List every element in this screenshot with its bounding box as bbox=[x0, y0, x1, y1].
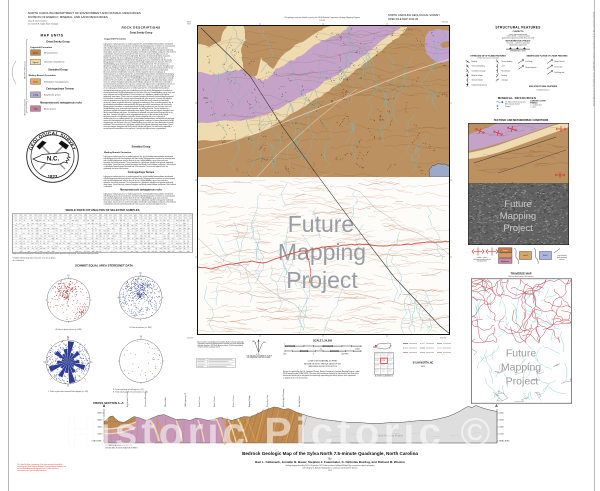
svg-text:TRAVERSE MAP: TRAVERSE MAP bbox=[510, 271, 531, 275]
svg-text:Mesoproterozoic metaigneous ro: Mesoproterozoic metaigneous rocks bbox=[120, 189, 162, 192]
svg-text:N: N bbox=[140, 272, 142, 275]
svg-text:Amphibolite gneiss: Amphibolite gneiss bbox=[44, 93, 61, 96]
svg-text:NORTH CAROLINA GEOLOGICAL SURV: NORTH CAROLINA GEOLOGICAL SURVEY bbox=[388, 13, 440, 17]
svg-text:This geologic map was funded i: This geologic map was funded in part by … bbox=[284, 16, 360, 19]
svg-text:Historic Pictoric ©: Historic Pictoric © bbox=[66, 409, 494, 455]
svg-text:0.5: 0.5 bbox=[320, 348, 322, 350]
svg-text:SEA LEVEL: SEA LEVEL bbox=[499, 440, 511, 443]
svg-text:Copperhill Formation: Copperhill Formation bbox=[30, 46, 53, 49]
svg-text:Future: Future bbox=[506, 348, 537, 360]
svg-text:Great Smoky Group: Great Smoky Group bbox=[46, 41, 70, 44]
svg-text:CONTOUR INTERVAL 40 FEET: CONTOUR INTERVAL 40 FEET bbox=[308, 359, 338, 362]
svg-text:NEOPROTEROZOIC: NEOPROTEROZOIC bbox=[24, 60, 26, 79]
svg-text:Rock Creek: Rock Creek bbox=[214, 397, 216, 407]
svg-text:Mapping: Mapping bbox=[501, 362, 541, 374]
svg-text:1000: 1000 bbox=[283, 354, 287, 356]
svg-text:Inner P.: Inner P. bbox=[523, 255, 528, 257]
svg-text:SCHMIDT EQUAL AREA STEREONET D: SCHMIDT EQUAL AREA STEREONET DATA bbox=[75, 264, 133, 268]
svg-text:Pressley Gap: Pressley Gap bbox=[267, 394, 269, 407]
svg-text:Bart L. Cattanach, Jennifer B.: Bart L. Cattanach, Jennifer B. Bauer, St… bbox=[255, 460, 405, 464]
svg-text:Blue Ridge Parkway: Blue Ridge Parkway bbox=[283, 389, 285, 407]
svg-text:1823: 1823 bbox=[48, 174, 58, 179]
svg-text:Quartzite metasiltstone: Quartzite metasiltstone bbox=[44, 61, 65, 64]
svg-text:A´: A´ bbox=[495, 404, 499, 408]
svg-text:SYLVA NORTH, NC: SYLVA NORTH, NC bbox=[413, 362, 434, 365]
svg-text:Wading Branch Formation: Wading Branch Formation bbox=[104, 151, 132, 154]
svg-text:s – sand: s – sand bbox=[530, 107, 535, 109]
svg-text:Cartoogechaye Terrane: Cartoogechaye Terrane bbox=[46, 88, 74, 91]
svg-text:OPEN FILE MAP 2012-05: OPEN FILE MAP 2012-05 bbox=[388, 17, 419, 21]
svg-text:Bedding: Bedding bbox=[472, 61, 478, 63]
svg-text:Zgmw: Zgmw bbox=[33, 62, 39, 64]
svg-text:83°07'30": 83°07'30" bbox=[440, 337, 447, 339]
svg-text:SYMBOLS: SYMBOLS bbox=[530, 102, 537, 104]
svg-text:Mesoproterozoic metaigneous ro: Mesoproterozoic metaigneous rocks bbox=[40, 102, 82, 105]
svg-text:D. Trend and plunge of fold h: D. Trend and plunge of fold hinges (n = … bbox=[113, 389, 144, 391]
svg-text:35°30': 35°30' bbox=[187, 24, 192, 26]
svg-text:Copperhill Formation: Copperhill Formation bbox=[104, 37, 127, 40]
svg-text:STRIKE AND DIP OF PLANAR FEATU: STRIKE AND DIP OF PLANAR FEATURES bbox=[470, 55, 506, 58]
svg-text:Mapping: Mapping bbox=[500, 211, 536, 222]
svg-text:83°07'30": 83°07'30" bbox=[442, 21, 449, 23]
svg-text:Fold hinge line: Fold hinge line bbox=[555, 72, 565, 74]
svg-text:Snowbird Group: Snowbird Group bbox=[132, 146, 151, 149]
svg-text:Project: Project bbox=[286, 267, 358, 293]
svg-text:Feldspathic metagraywacke: Feldspathic metagraywacke bbox=[44, 80, 70, 83]
svg-text:0 MILE: 0 MILE bbox=[355, 348, 360, 350]
svg-text:Scott Creek: Scott Creek bbox=[198, 397, 201, 407]
svg-text:COMMODITY LETTER: COMMODITY LETTER bbox=[530, 100, 546, 102]
svg-text:Cartoogechaye Terrane: Cartoogechaye Terrane bbox=[128, 171, 155, 174]
svg-text:83°15': 83°15' bbox=[187, 21, 192, 23]
svg-text:Big Branch Creek: Big Branch Creek bbox=[127, 391, 129, 407]
svg-text:Zgms: Zgms bbox=[33, 52, 38, 54]
svg-text:Zwbs: Zwbs bbox=[33, 81, 38, 83]
svg-text:Wilkes Mtn: Wilkes Mtn bbox=[164, 397, 167, 407]
svg-text:BEARING AND PLUNGE OF LINEAR F: BEARING AND PLUNGE OF LINEAR FEATURES bbox=[527, 55, 569, 58]
svg-text:DIVISION OF ENERGY, MINERAL, A: DIVISION OF ENERGY, MINERAL, AND LAND RE… bbox=[28, 15, 108, 19]
svg-text:SCALE 1:24,000: SCALE 1:24,000 bbox=[313, 340, 333, 343]
svg-text:Blue R.: Blue R. bbox=[543, 255, 548, 257]
svg-text:MESOPROTEROZOIC: MESOPROTEROZOIC bbox=[24, 98, 26, 115]
svg-text:MAP UNITS: MAP UNITS bbox=[40, 34, 63, 38]
svg-text:Wading Branch Formation: Wading Branch Formation bbox=[29, 74, 57, 77]
svg-text:NON-STRUCTURAL FEATURES: NON-STRUCTURAL FEATURES bbox=[529, 85, 558, 88]
svg-text:Dr. Kenneth B. Taylor, State G: Dr. Kenneth B. Taylor, State Geologist bbox=[28, 22, 59, 25]
svg-text:35°22'30": 35°22'30" bbox=[187, 337, 194, 339]
svg-text:MINERAL RESOURCES: MINERAL RESOURCES bbox=[498, 96, 537, 100]
svg-text:N.C.: N.C. bbox=[47, 156, 60, 163]
svg-text:Project: Project bbox=[506, 376, 539, 388]
svg-text:TECTONIC AND METAMORPHIC CONDI: TECTONIC AND METAMORPHIC CONDITIONS bbox=[494, 119, 549, 122]
svg-text:N: N bbox=[68, 275, 70, 278]
svg-text:CZbg: CZbg bbox=[33, 95, 39, 97]
svg-text:1000 FEET: 1000 FEET bbox=[341, 354, 349, 356]
svg-text:zone of inferred: zone of inferred bbox=[557, 255, 566, 257]
svg-text:WHOLE ROCK ICP ANALYSIS OF SEL: WHOLE ROCK ICP ANALYSIS OF SELECTED SAMP… bbox=[65, 208, 139, 212]
svg-text:Banding: Banding bbox=[502, 75, 508, 77]
svg-text:Metasandstone: Metasandstone bbox=[44, 51, 59, 54]
svg-text:2012: 2012 bbox=[328, 470, 332, 472]
svg-text:Moody Bald: Moody Bald bbox=[299, 396, 301, 407]
svg-text:Project: Project bbox=[503, 223, 533, 234]
svg-text:Tracy E. Davis, Director: Tracy E. Davis, Director bbox=[28, 20, 47, 23]
svg-text:Future: Future bbox=[504, 199, 531, 210]
svg-text:CONTACTS: CONTACTS bbox=[513, 30, 525, 33]
svg-text:N: N bbox=[140, 336, 142, 339]
svg-text:Snowbird Group: Snowbird Group bbox=[48, 68, 68, 71]
svg-text:ROCK DESCRIPTIONS: ROCK DESCRIPTIONS bbox=[121, 25, 160, 29]
svg-text:Biotite gneiss: Biotite gneiss bbox=[44, 107, 56, 110]
svg-text:Fisher Creek: Fisher Creek bbox=[233, 396, 235, 407]
svg-text:Cleavage: Cleavage bbox=[502, 80, 509, 82]
svg-text:STRUCTURAL FEATURES: STRUCTURAL FEATURES bbox=[495, 25, 540, 29]
svg-text:Great Smoky Group: Great Smoky Group bbox=[130, 32, 153, 35]
svg-text:Mapping: Mapping bbox=[278, 239, 366, 265]
svg-text:Johnson Mountain: Johnson Mountain bbox=[144, 391, 147, 407]
svg-text:Future: Future bbox=[288, 211, 354, 237]
svg-text:Taconic: Taconic bbox=[503, 250, 508, 252]
svg-text:CROSS SECTION A–A´: CROSS SECTION A–A´ bbox=[93, 401, 124, 405]
svg-text:Fold hinge: Fold hinge bbox=[526, 61, 533, 63]
svg-text:Agway Ridge: Agway Ridge bbox=[248, 394, 251, 407]
svg-text:Old Highway 19: Old Highway 19 bbox=[185, 392, 187, 407]
svg-text:1:24,000: 1:24,000 bbox=[319, 20, 325, 22]
